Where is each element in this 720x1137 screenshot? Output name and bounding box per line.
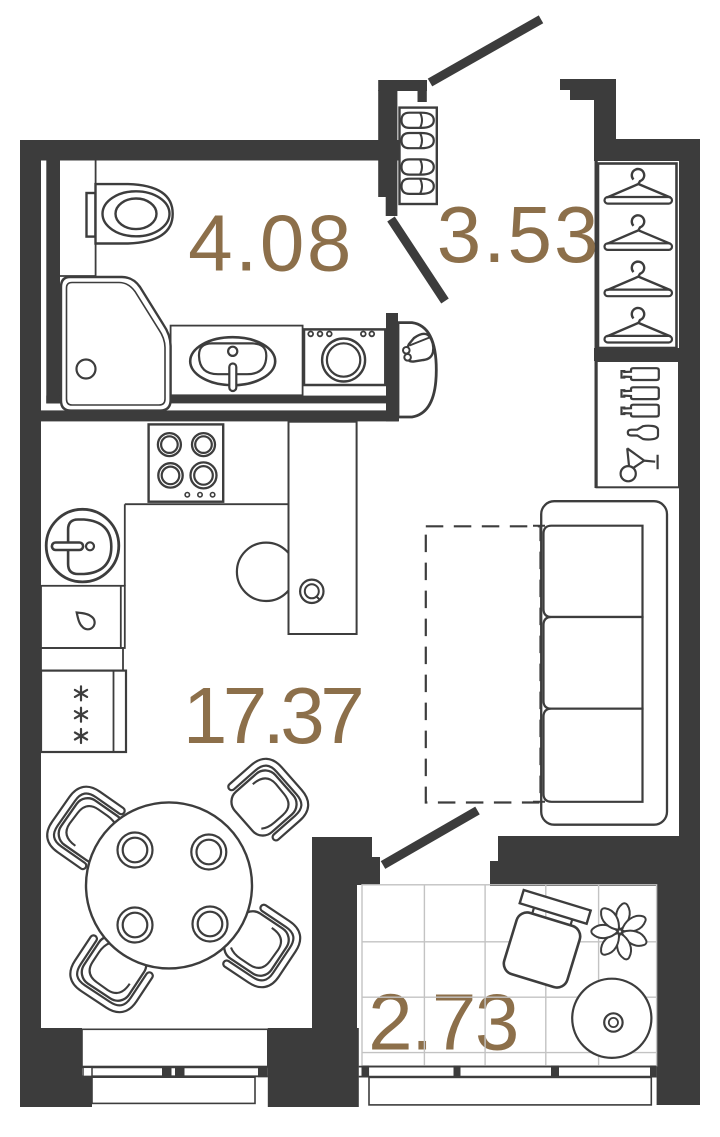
svg-text:4.08: 4.08 xyxy=(188,199,354,288)
svg-text:3.53: 3.53 xyxy=(437,190,601,279)
svg-text:17.37: 17.37 xyxy=(183,671,361,760)
